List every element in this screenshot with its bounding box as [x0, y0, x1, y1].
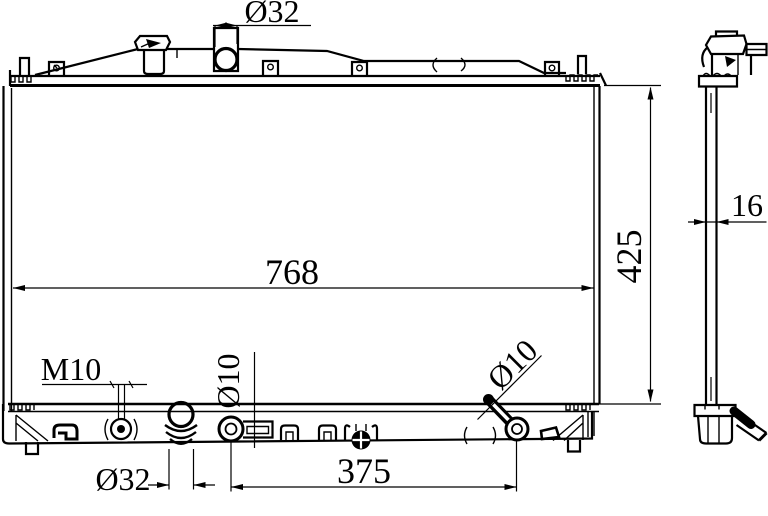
- radiator-drawing: Ø32 768 425 16 M10 Ø10: [0, 0, 768, 516]
- top-mount-bracket-2: [263, 61, 278, 75]
- dim-right-fitting-diameter: Ø10: [478, 332, 545, 419]
- side-outlet-elbow: [734, 411, 751, 425]
- bottom-recess-arcs: [465, 427, 496, 444]
- bottom-brace-right: [553, 415, 583, 441]
- dim-overall-height: 425: [599, 86, 661, 405]
- side-filler-neck: [699, 32, 767, 87]
- dim-core-thickness: 16: [688, 187, 767, 225]
- drain-plug: [105, 419, 137, 440]
- dim-label-left-fitting: Ø10: [210, 353, 246, 408]
- top-tab-left: [20, 58, 29, 76]
- drawing-canvas: Ø32 768 425 16 M10 Ø10: [0, 0, 768, 516]
- dim-outlet-diameter: Ø32: [95, 449, 215, 497]
- fitting-10-right: [483, 394, 528, 440]
- bottom-clip-left: [54, 425, 77, 439]
- dim-core-width: 768: [13, 252, 594, 292]
- outlet-pipe-32: [165, 403, 197, 444]
- dim-label-core-width: 768: [265, 252, 319, 292]
- dim-fitting-span: 375: [231, 441, 517, 492]
- dim-label-fitting-span: 375: [337, 451, 391, 491]
- side-bottom-tank: [695, 405, 767, 444]
- bottom-tank: [3, 394, 599, 454]
- bottom-clip-1: [281, 426, 298, 441]
- front-view: [3, 28, 606, 454]
- dim-label-right-fitting: Ø10: [480, 332, 544, 396]
- dim-label-outlet-diameter: Ø32: [95, 461, 150, 497]
- dim-inlet-diameter: Ø32: [213, 0, 311, 47]
- bottom-brace-left: [16, 415, 48, 441]
- dim-label-inlet-diameter: Ø32: [244, 0, 299, 29]
- side-core: [706, 86, 717, 404]
- bottom-serration-right: [566, 404, 590, 410]
- top-tab-right: [578, 56, 586, 74]
- side-view: [695, 32, 767, 444]
- dim-label-core-thickness: 16: [731, 187, 763, 223]
- bottom-serration-left: [10, 404, 34, 410]
- inlet-pipe: [214, 28, 238, 71]
- fitting-10-left: [219, 417, 273, 441]
- top-tank: [10, 28, 606, 86]
- bottom-tab-right: [568, 440, 580, 452]
- top-right-corner: [600, 73, 606, 86]
- bottom-clip-2: [319, 426, 336, 441]
- drain-petcock: [345, 424, 377, 450]
- top-mount-bracket-3: [352, 62, 367, 75]
- filler-cap: [135, 36, 170, 74]
- dim-label-overall-height: 425: [609, 230, 649, 284]
- dim-label-drain-thread: M10: [41, 351, 101, 387]
- top-serration-left: [11, 76, 35, 82]
- side-filler-accent: [725, 56, 736, 67]
- dim-drain-thread: M10: [41, 351, 147, 419]
